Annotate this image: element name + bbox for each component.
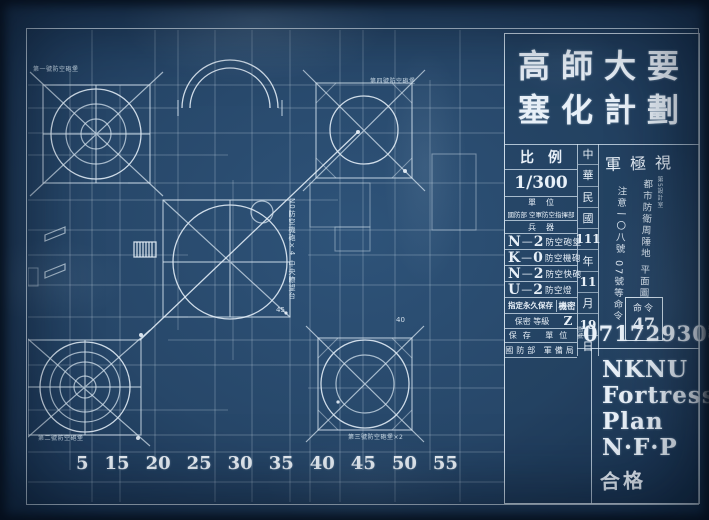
date-char: 中 <box>578 144 598 165</box>
serial-prefix: 圖號 <box>577 327 583 340</box>
grid-horizontal-lines <box>28 85 504 482</box>
inventory-code: K <box>508 250 520 266</box>
classification-marking: 軍極視 <box>605 149 681 175</box>
inventory-row: U — 2 防空燈 <box>505 282 577 298</box>
bunker-bottom-right <box>306 326 424 442</box>
dimension-45: 45 <box>276 306 285 314</box>
plan-drawing <box>28 30 504 502</box>
center-guns-label: N0防空機砲×4 <box>287 198 297 260</box>
inventory-dash: — <box>521 251 532 264</box>
inventory-dash: — <box>521 283 532 296</box>
inventory-dash: — <box>522 267 533 280</box>
arch-structure <box>178 60 282 116</box>
archive-row-2: 保密 等級 Z <box>505 314 577 329</box>
inventory-count: 2 <box>533 282 543 298</box>
scale-tick: 5 <box>76 453 89 474</box>
order-label: 命令 <box>626 298 662 314</box>
bunker-label-top-left: 第一號防空砲堡 <box>33 64 79 73</box>
secrecy-grade-value: Z <box>559 314 577 328</box>
date-char: 月 <box>578 293 598 314</box>
bunker-top-left <box>30 72 163 196</box>
inventory-count: 2 <box>534 266 544 282</box>
footer-line-nknu: NKNU <box>602 357 700 383</box>
title-block: 高師大要 塞化計劃 比例 1/300 單位 國防部 空軍防空指揮部 兵器 N —… <box>504 33 700 504</box>
archive-row-1: 指定永久保存 機密 <box>505 298 577 314</box>
info-column: 比例 1/300 單位 國防部 空軍防空指揮部 兵器 N — 2 防空砲堡 K … <box>505 144 577 389</box>
unit-value: 國防部 空軍防空指揮部 <box>505 208 577 221</box>
serial-strip: 圖號 07172930 號碼 <box>577 319 699 349</box>
bunker-bottom-left <box>28 330 150 446</box>
measuring-scale: 5 15 20 25 30 35 40 45 50 55 <box>76 453 458 474</box>
title-cell: 高師大要 塞化計劃 <box>505 34 699 145</box>
date-char: 華 <box>578 165 598 186</box>
center-tower-label: 中央瞭望台 <box>287 260 297 312</box>
inventory-dash: — <box>522 235 533 248</box>
inventory-count: 2 <box>534 234 544 250</box>
plan-title-line1: 高師大要 <box>518 44 699 88</box>
inventory-count: 0 <box>533 250 543 266</box>
inventory-row: N — 2 防空快砲 <box>505 266 577 282</box>
unit-label: 單位 <box>505 197 577 208</box>
inventory-row: K — 0 防空機砲 <box>505 250 577 266</box>
archive-confidential-label: 機密 <box>556 300 577 312</box>
scale-tick: 55 <box>433 453 458 474</box>
approval-stamp: 合格 <box>600 464 647 495</box>
inventory-name: 防空燈 <box>545 284 572 296</box>
plan-title-line2: 塞化計劃 <box>518 88 699 132</box>
auxiliary-buildings <box>310 154 476 251</box>
scale-tick: 50 <box>392 453 417 474</box>
weapons-label: 兵器 <box>505 221 577 234</box>
bunker-label-bottom-right: 第三號防空砲堡×2 <box>348 432 403 441</box>
bunker-top-right <box>303 70 425 191</box>
scale-label: 比例 <box>505 144 577 170</box>
secrecy-grade-label: 保密 等級 <box>505 316 559 327</box>
inventory-name: 防空機砲 <box>545 252 581 264</box>
blueprint-sheet: 第一號防空砲堡 第四號防空砲堡 第二號防空砲堡 第三號防空砲堡×2 N0防空機砲… <box>0 0 709 520</box>
footer-line-nfp: N·F·P <box>602 435 700 461</box>
date-char: 國 <box>578 208 598 229</box>
storage-unit-value: 國防部 軍備局 <box>505 343 577 358</box>
scale-tick: 20 <box>146 453 171 474</box>
serial-number: 07172930 <box>583 321 708 346</box>
inventory-code: N <box>508 266 521 282</box>
storage-unit-label: 保存 單位 <box>505 329 577 343</box>
dimension-40: 40 <box>396 316 405 324</box>
bunker-label-bottom-left: 第二號防空砲堡 <box>38 433 84 442</box>
scale-tick: 30 <box>228 453 253 474</box>
scale-tick: 35 <box>269 453 294 474</box>
date-char: 年 <box>578 250 598 271</box>
handwritten-note-1-small: 第5設計室 <box>655 176 664 236</box>
scale-tick: 40 <box>310 453 335 474</box>
archive-preservation-label: 指定永久保存 <box>505 300 556 311</box>
scale-value: 1/300 <box>505 170 577 197</box>
footer-line-fortress: Fortress <box>602 383 700 409</box>
footer-block: NKNU Fortress Plan N·F·P 合格 <box>591 348 700 504</box>
scale-tick: 45 <box>351 453 376 474</box>
date-year: 111 <box>578 229 598 250</box>
footer-line-plan: Plan <box>602 409 700 435</box>
inventory-row: N — 2 防空砲堡 <box>505 234 577 250</box>
inventory-code: U <box>508 282 520 298</box>
inventory-code: N <box>508 234 521 250</box>
bunker-label-top-right: 第四號防空砲堡 <box>370 76 416 85</box>
date-month: 11 <box>578 272 598 293</box>
scale-tick: 15 <box>105 453 130 474</box>
scale-tick: 25 <box>187 453 212 474</box>
date-char: 民 <box>578 187 598 208</box>
central-structure <box>140 130 360 340</box>
